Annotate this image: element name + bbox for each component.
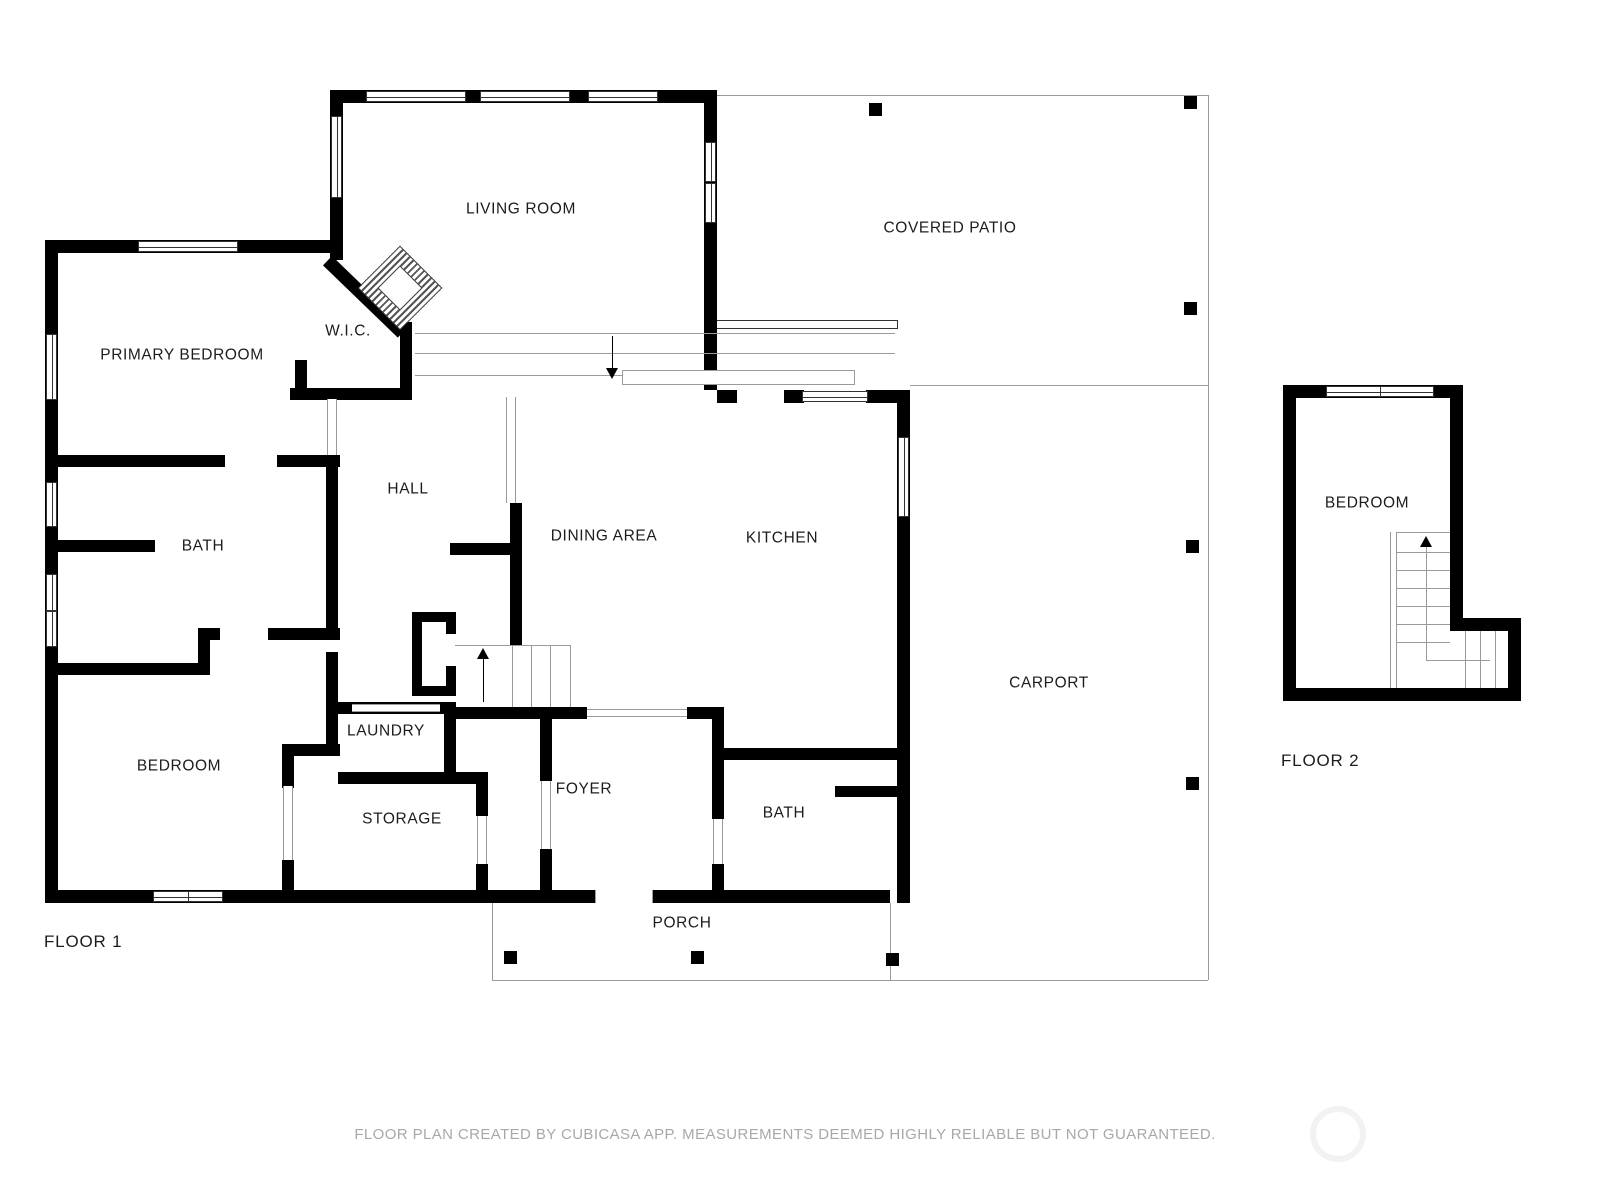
window bbox=[588, 91, 658, 102]
room-label-bedroom-floor2: BEDROOM bbox=[1325, 495, 1409, 511]
fireplace-icon bbox=[358, 246, 443, 331]
window bbox=[705, 183, 716, 223]
wall-segment bbox=[326, 455, 338, 640]
stair-tread bbox=[415, 375, 622, 376]
floor1-label: FLOOR 1 bbox=[44, 932, 122, 952]
patio-carport-divider bbox=[910, 385, 1208, 386]
window bbox=[480, 91, 570, 102]
patio-rail bbox=[713, 320, 898, 329]
footer-disclaimer: FLOOR PLAN CREATED BY CUBICASA APP. MEAS… bbox=[200, 1126, 1370, 1143]
stair-direction-line bbox=[1426, 545, 1427, 660]
floor2-label: FLOOR 2 bbox=[1281, 751, 1359, 771]
carport-outline-left-lower bbox=[890, 903, 891, 980]
wall-segment bbox=[540, 849, 552, 903]
stair-tread bbox=[531, 645, 532, 707]
stair-direction-line bbox=[612, 336, 613, 368]
wall-segment bbox=[45, 663, 210, 675]
room-label-primary-bedroom: PRIMARY BEDROOM bbox=[100, 347, 263, 363]
closet-wall bbox=[412, 686, 456, 696]
carport-post bbox=[1186, 777, 1199, 790]
wall-segment bbox=[476, 772, 488, 816]
closet-wall bbox=[446, 612, 456, 634]
wall-segment bbox=[835, 786, 897, 797]
window bbox=[46, 611, 57, 647]
watermark-circle bbox=[1310, 1106, 1366, 1162]
stair-tread bbox=[1397, 624, 1450, 625]
wall-segment bbox=[400, 322, 412, 400]
wall-segment bbox=[282, 744, 340, 756]
cased-opening bbox=[506, 397, 516, 503]
patio-carport-outline-right bbox=[1208, 95, 1209, 980]
stair-tread bbox=[1397, 570, 1450, 571]
door-opening bbox=[713, 819, 723, 864]
stair-edge bbox=[1397, 532, 1450, 533]
wall-segment bbox=[1283, 385, 1296, 701]
stair-tread bbox=[1495, 631, 1496, 688]
room-label-bath: BATH bbox=[182, 538, 225, 554]
window bbox=[138, 241, 238, 252]
wall-segment bbox=[338, 772, 488, 784]
wall-segment bbox=[724, 748, 898, 760]
room-label-foyer: FOYER bbox=[556, 781, 612, 797]
wall-segment bbox=[476, 864, 488, 903]
room-label-dining-area: DINING AREA bbox=[551, 528, 658, 544]
stair-edge bbox=[570, 645, 571, 707]
wall-segment bbox=[712, 864, 724, 903]
closet-wall bbox=[412, 612, 422, 696]
wall-segment bbox=[210, 628, 220, 640]
stair-tread bbox=[1397, 642, 1450, 643]
door-opening bbox=[477, 816, 487, 864]
cased-opening bbox=[587, 709, 687, 717]
stair-tread bbox=[415, 353, 895, 354]
fireplace-core bbox=[377, 265, 422, 310]
closet-wall bbox=[446, 666, 456, 686]
wall-segment bbox=[295, 360, 307, 392]
door-opening bbox=[541, 781, 551, 849]
window bbox=[1326, 386, 1434, 397]
wall-segment bbox=[282, 756, 294, 788]
wall-segment bbox=[45, 540, 155, 552]
wall-segment bbox=[282, 860, 294, 903]
wall-segment bbox=[717, 390, 737, 403]
porch-post bbox=[886, 953, 899, 966]
stair-tread bbox=[415, 333, 895, 334]
door-opening bbox=[327, 399, 337, 455]
stairs-up-arrow-icon bbox=[1420, 536, 1432, 547]
wall-segment bbox=[540, 719, 552, 781]
window bbox=[331, 116, 342, 198]
patio-post bbox=[1184, 302, 1197, 315]
stair-tread bbox=[1397, 552, 1450, 553]
porch-post bbox=[504, 951, 517, 964]
window bbox=[46, 574, 57, 611]
patio-post bbox=[1184, 96, 1197, 109]
porch-post bbox=[691, 951, 704, 964]
wall-segment bbox=[1283, 688, 1521, 701]
door-opening bbox=[595, 890, 653, 903]
stair-wall-line bbox=[1396, 532, 1397, 688]
floor-plan-canvas: LIVING ROOM COVERED PATIO PRIMARY BEDROO… bbox=[0, 0, 1600, 1200]
wall-segment bbox=[784, 390, 804, 403]
stair-wall-line bbox=[1390, 532, 1391, 688]
window bbox=[705, 142, 716, 182]
stair-tread bbox=[1397, 606, 1450, 607]
wall-segment bbox=[45, 455, 225, 467]
room-label-living-room: LIVING ROOM bbox=[466, 201, 576, 217]
room-label-bedroom: BEDROOM bbox=[137, 758, 221, 774]
wall-segment bbox=[704, 90, 717, 390]
stair-direction-line bbox=[1426, 660, 1490, 661]
patio-outline-top bbox=[717, 95, 1208, 96]
window bbox=[366, 91, 466, 102]
wall-segment bbox=[1450, 385, 1463, 631]
stair-edge bbox=[455, 645, 571, 646]
stair-tread bbox=[1397, 588, 1450, 589]
wall-segment bbox=[1450, 618, 1521, 631]
room-label-storage: STORAGE bbox=[362, 811, 442, 827]
window bbox=[153, 891, 223, 902]
wall-segment bbox=[455, 707, 587, 719]
window bbox=[802, 391, 868, 402]
wall-segment bbox=[326, 652, 338, 744]
stair-direction-line bbox=[483, 658, 484, 702]
porch-outline-bottom bbox=[492, 980, 890, 981]
room-label-hall: HALL bbox=[387, 481, 428, 497]
stair-tread bbox=[550, 645, 551, 707]
carport-post bbox=[1186, 540, 1199, 553]
cased-opening bbox=[352, 704, 440, 712]
wall-segment bbox=[712, 707, 724, 819]
stair-landing bbox=[622, 370, 855, 385]
stairs-up-arrow-icon bbox=[477, 648, 489, 659]
porch-outline-left bbox=[492, 903, 493, 980]
room-label-carport: CARPORT bbox=[1009, 675, 1089, 691]
stairs-down-arrow-icon bbox=[606, 368, 618, 379]
wall-segment bbox=[290, 388, 412, 400]
wall-segment bbox=[510, 503, 522, 645]
window bbox=[46, 482, 57, 527]
wall-segment bbox=[268, 628, 340, 640]
room-label-bath2: BATH bbox=[763, 805, 806, 821]
window bbox=[898, 437, 909, 517]
room-label-porch: PORCH bbox=[653, 915, 712, 931]
room-label-covered-patio: COVERED PATIO bbox=[884, 220, 1017, 236]
room-label-laundry: LAUNDRY bbox=[347, 723, 425, 739]
room-label-wic: W.I.C. bbox=[325, 323, 371, 339]
carport-outline-bottom bbox=[890, 980, 1208, 981]
room-label-kitchen: KITCHEN bbox=[746, 530, 818, 546]
patio-post bbox=[869, 103, 882, 116]
door-opening bbox=[283, 786, 293, 860]
window bbox=[46, 334, 57, 400]
stair-tread bbox=[512, 645, 513, 707]
